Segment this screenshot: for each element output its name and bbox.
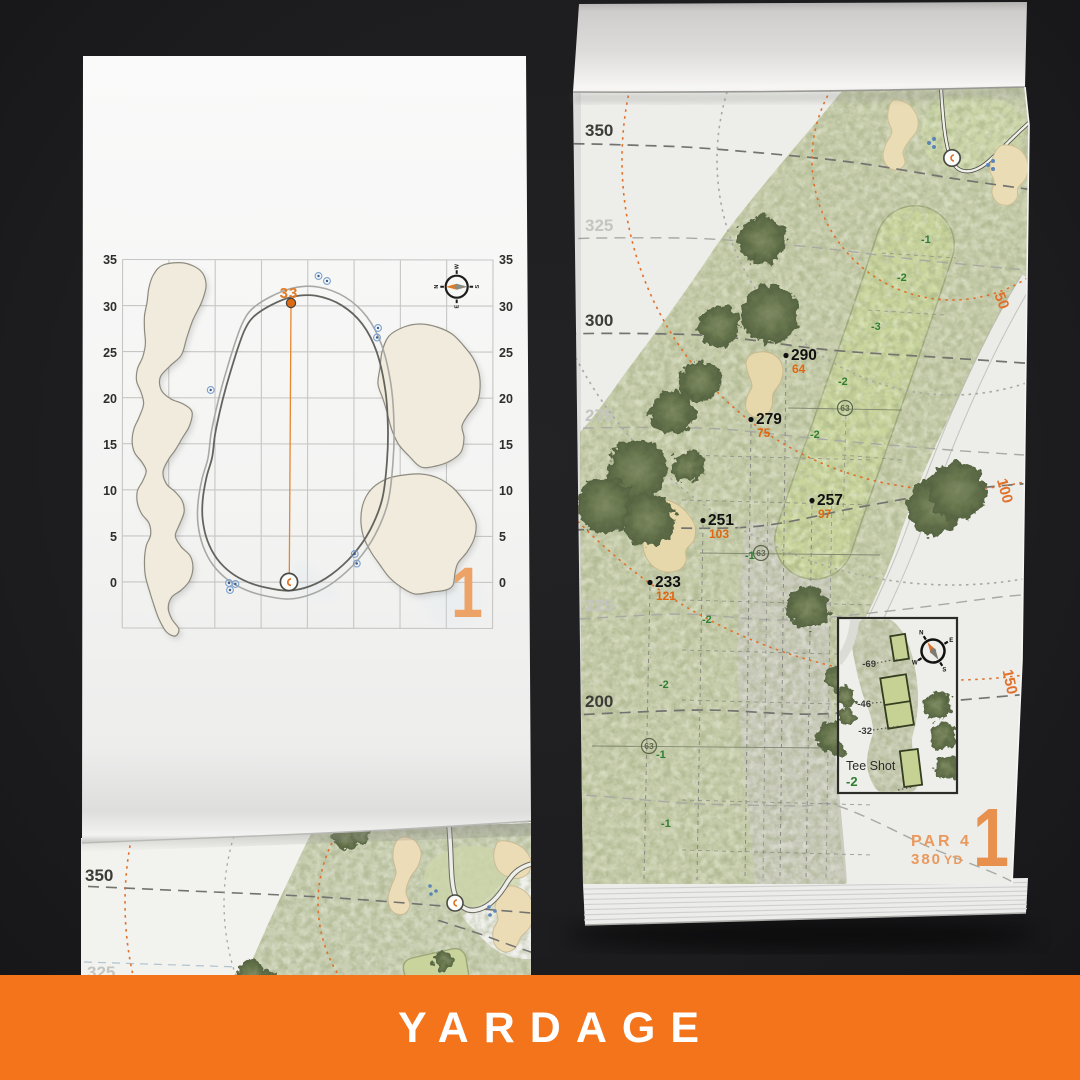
svg-text:10: 10 (499, 484, 513, 498)
svg-text:380YD: 380YD (911, 851, 964, 868)
svg-text:-1: -1 (745, 550, 755, 562)
svg-text:-2: -2 (659, 679, 669, 691)
svg-text:1: 1 (451, 553, 483, 633)
svg-text:-2: -2 (810, 429, 820, 441)
svg-text:325: 325 (585, 216, 613, 235)
svg-text:N: N (919, 630, 923, 636)
svg-text:S: S (475, 285, 481, 289)
svg-text:W: W (912, 661, 918, 667)
svg-text:15: 15 (103, 438, 117, 452)
svg-text:PAR 4: PAR 4 (911, 833, 972, 850)
svg-text:5: 5 (499, 530, 506, 544)
svg-text:20: 20 (103, 392, 117, 406)
svg-text:64: 64 (792, 362, 806, 376)
svg-text:30: 30 (499, 300, 513, 314)
svg-text:5: 5 (110, 530, 117, 544)
svg-text:225: 225 (585, 596, 613, 615)
svg-text:275: 275 (585, 406, 613, 425)
svg-text:-1: -1 (921, 234, 931, 246)
svg-text:10: 10 (103, 484, 117, 498)
svg-text:1: 1 (973, 791, 1009, 884)
svg-text:63: 63 (840, 403, 850, 413)
svg-text:63: 63 (644, 741, 654, 751)
svg-text:350: 350 (585, 121, 613, 140)
svg-text:35: 35 (499, 253, 513, 267)
svg-text:-2: -2 (838, 376, 848, 388)
svg-text:W: W (455, 263, 461, 269)
svg-text:63: 63 (756, 548, 766, 558)
svg-text:0: 0 (110, 576, 117, 590)
svg-text:-2: -2 (846, 774, 858, 789)
svg-text:97: 97 (818, 507, 832, 521)
svg-text:S: S (942, 668, 946, 674)
svg-text:20: 20 (499, 392, 513, 406)
svg-text:15: 15 (499, 438, 513, 452)
svg-text:-2: -2 (897, 272, 907, 284)
svg-text:-1: -1 (656, 749, 666, 761)
svg-text:E: E (949, 638, 953, 644)
svg-text:121: 121 (656, 589, 676, 603)
svg-text:N: N (434, 285, 440, 289)
svg-text:YARDAGE: YARDAGE (398, 1004, 714, 1052)
svg-text:30: 30 (103, 300, 117, 314)
svg-text:Tee Shot: Tee Shot (846, 759, 896, 773)
svg-text:25: 25 (103, 346, 117, 360)
svg-text:-3: -3 (871, 321, 881, 333)
svg-text:35: 35 (103, 253, 117, 267)
svg-text:300: 300 (585, 311, 613, 330)
svg-text:25: 25 (499, 346, 513, 360)
svg-text:103: 103 (709, 527, 729, 541)
svg-text:-2: -2 (702, 614, 712, 626)
svg-text:-32: -32 (858, 726, 872, 737)
svg-text:E: E (455, 305, 461, 309)
svg-text:75: 75 (757, 426, 771, 440)
svg-text:0: 0 (499, 576, 506, 590)
svg-text:-69: -69 (862, 659, 876, 670)
svg-text:200: 200 (585, 692, 613, 711)
svg-text:-46: -46 (857, 699, 871, 710)
svg-text:-1: -1 (661, 818, 671, 830)
svg-text:350: 350 (85, 866, 113, 885)
